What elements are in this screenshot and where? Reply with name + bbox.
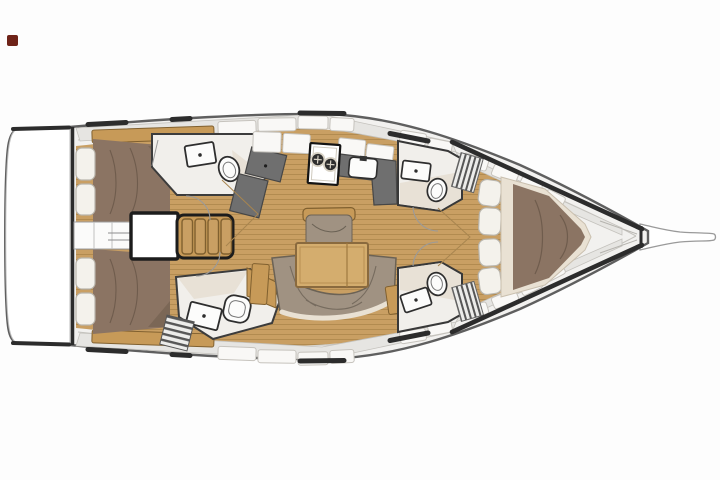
companionway-stairs	[131, 213, 233, 259]
companionway-landing	[131, 213, 178, 259]
toilet	[222, 294, 253, 325]
hull-window-dash	[172, 119, 190, 120]
transom-bottom-bar	[13, 343, 69, 345]
saloon-table	[296, 243, 368, 287]
sofa-end-table	[250, 263, 270, 304]
hull-window-dash	[88, 123, 126, 125]
burner	[323, 157, 337, 171]
hull-window-dash	[300, 113, 344, 114]
floor-plan-drawing	[0, 0, 720, 480]
transom-top-bar	[13, 128, 69, 130]
pillow	[76, 293, 95, 325]
engine-compartment	[74, 222, 132, 249]
bowsprit	[640, 224, 716, 250]
pillow	[478, 207, 501, 235]
transom-deck	[6, 128, 70, 344]
red-marker	[7, 35, 18, 46]
hull-window-dash	[172, 355, 190, 356]
single-seat	[306, 215, 352, 246]
compartment-hatch	[74, 222, 132, 249]
pillow	[76, 258, 95, 289]
stove	[308, 143, 341, 185]
sink	[401, 160, 431, 181]
hull-window-dash	[300, 361, 344, 362]
galley-sink	[348, 155, 378, 179]
burner	[311, 153, 325, 167]
sink	[184, 142, 216, 167]
pillow	[76, 184, 95, 215]
pillow	[478, 238, 501, 266]
yacht-floor-plan	[0, 0, 720, 480]
pillow	[76, 148, 95, 180]
pillow	[477, 179, 502, 208]
hull-window-dash	[88, 350, 126, 352]
swim-platform-transom	[6, 127, 73, 345]
pillow	[477, 267, 502, 296]
